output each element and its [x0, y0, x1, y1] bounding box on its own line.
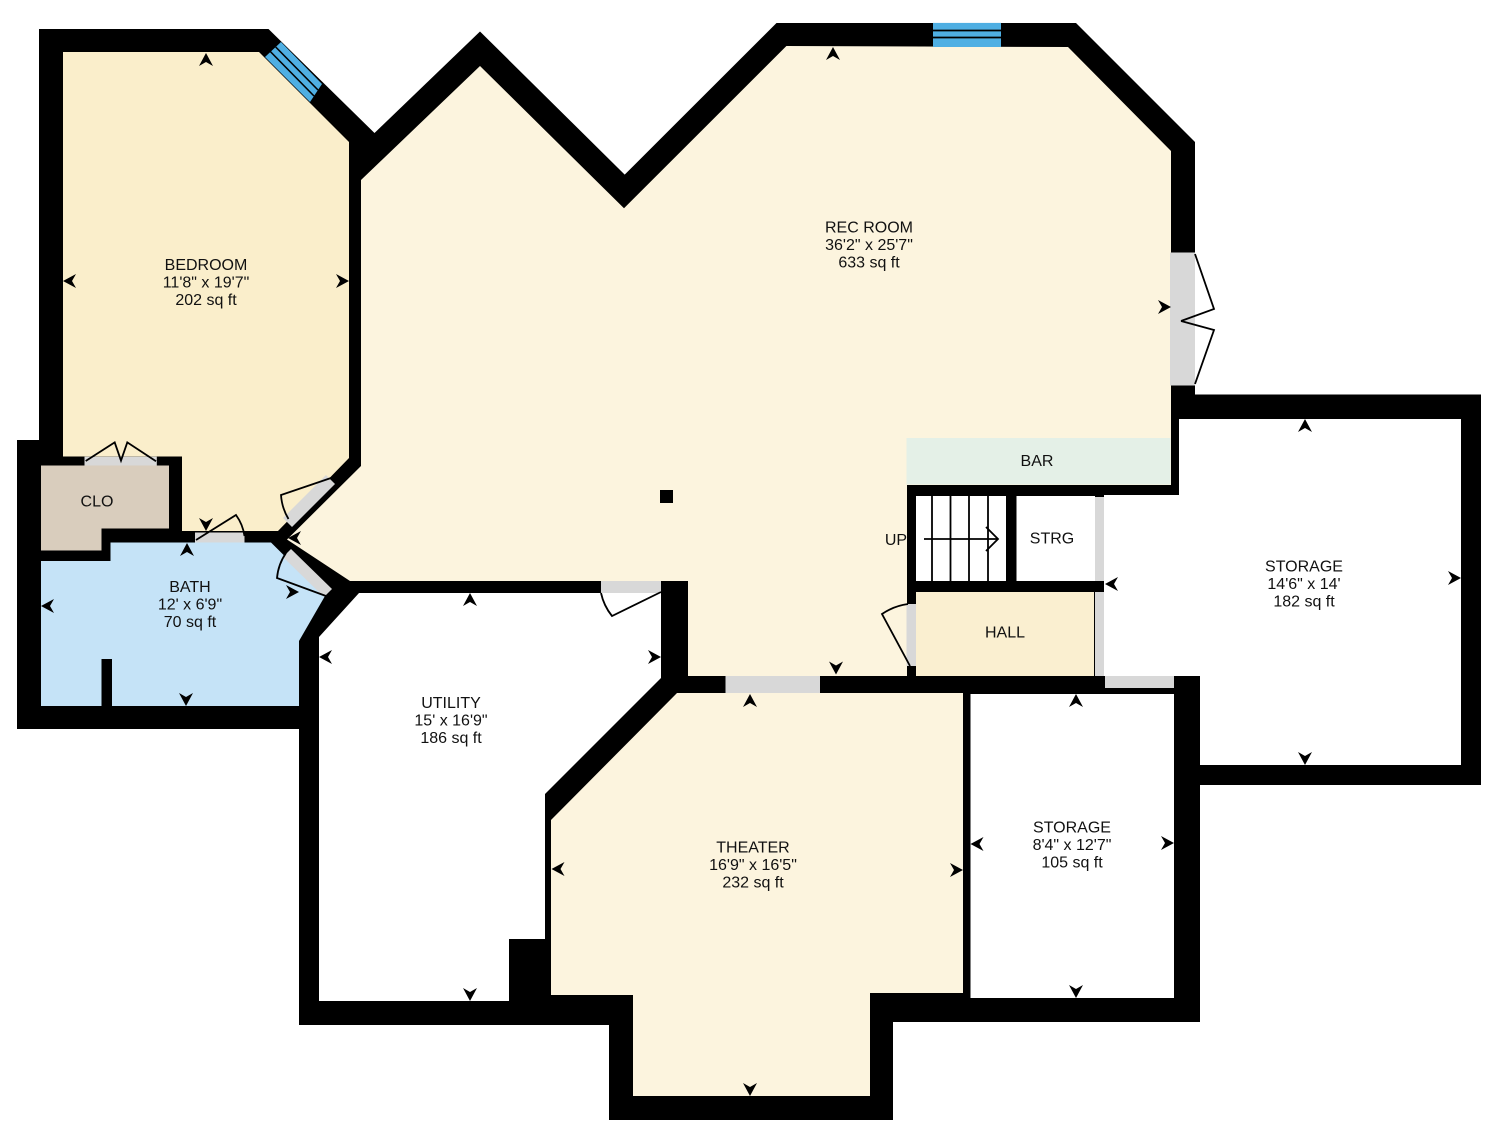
svg-text:STORAGE: STORAGE	[1265, 559, 1343, 576]
svg-text:BATH: BATH	[169, 579, 210, 596]
svg-text:186 sq ft: 186 sq ft	[420, 730, 482, 747]
svg-text:THEATER: THEATER	[716, 840, 789, 857]
svg-text:12' x 6'9": 12' x 6'9"	[158, 597, 222, 614]
svg-text:14'6" x 14': 14'6" x 14'	[1267, 576, 1340, 593]
svg-text:UP: UP	[885, 532, 907, 549]
svg-text:STORAGE: STORAGE	[1033, 820, 1111, 837]
svg-text:232 sq ft: 232 sq ft	[722, 875, 784, 892]
svg-text:BEDROOM: BEDROOM	[165, 257, 248, 274]
svg-text:CLO: CLO	[81, 494, 114, 511]
svg-text:36'2" x 25'7": 36'2" x 25'7"	[825, 237, 913, 254]
svg-text:BAR: BAR	[1021, 453, 1054, 470]
svg-text:633 sq ft: 633 sq ft	[838, 255, 900, 272]
svg-text:15' x 16'9": 15' x 16'9"	[414, 713, 487, 730]
svg-text:11'8" x 19'7": 11'8" x 19'7"	[163, 275, 250, 292]
svg-text:STRG: STRG	[1030, 531, 1074, 548]
svg-text:UTILITY: UTILITY	[421, 695, 481, 712]
svg-text:8'4" x 12'7": 8'4" x 12'7"	[1033, 837, 1112, 854]
svg-text:HALL: HALL	[985, 625, 1025, 642]
svg-text:182 sq ft: 182 sq ft	[1273, 594, 1335, 611]
svg-text:16'9" x 16'5": 16'9" x 16'5"	[709, 857, 797, 874]
svg-text:REC ROOM: REC ROOM	[825, 220, 913, 237]
svg-text:105 sq ft: 105 sq ft	[1041, 855, 1103, 872]
svg-text:202 sq ft: 202 sq ft	[175, 292, 237, 309]
svg-text:70 sq ft: 70 sq ft	[164, 614, 217, 631]
